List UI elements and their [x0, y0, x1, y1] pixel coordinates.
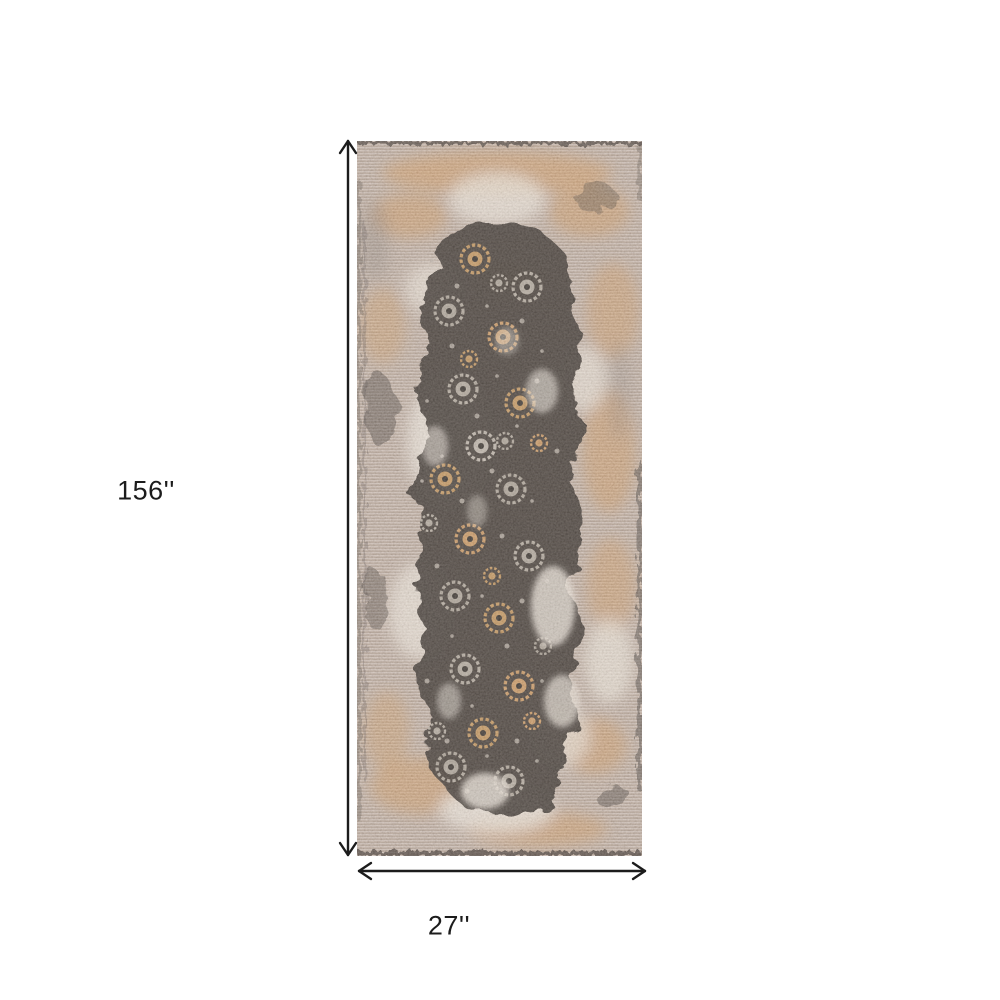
rug-image [357, 141, 642, 856]
width-dimension-label: 27'' [428, 911, 470, 942]
height-dimension-arrow-icon [333, 137, 363, 859]
height-dimension-label: 156'' [117, 476, 175, 507]
width-dimension-arrow-icon [355, 857, 649, 885]
diagram-canvas: 156'' 27'' [0, 0, 1000, 1000]
